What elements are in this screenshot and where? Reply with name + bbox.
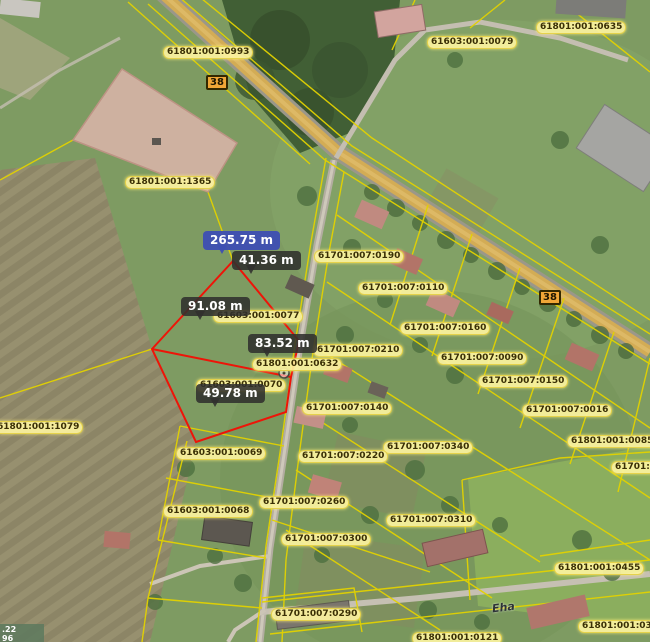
parcel-label: 61801:001:0455 [554, 562, 644, 575]
road-number-badge: 38 [539, 290, 561, 305]
parcel-label: 61801:001:1079 [0, 421, 83, 434]
parcel-label: 61701:007:0090 [437, 352, 527, 365]
parcel-label: 61701:00 [611, 461, 650, 474]
measurement-value: 83.52 m [255, 336, 310, 350]
parcel-label: 61801:001:0635 [536, 21, 626, 34]
parcel-label: 61701:007:0140 [302, 402, 392, 415]
measurement-value: 49.78 m [203, 386, 258, 400]
parcel-label: 61701:007:0016 [522, 404, 612, 417]
parcel-label: 61701:007:0340 [383, 441, 473, 454]
measurement-total-label: 265.75 m [203, 231, 280, 250]
measurement-value: 41.36 m [239, 253, 294, 267]
parcel-label: 61603:001:0079 [427, 36, 517, 49]
parcel-label: 61701:007:0210 [313, 344, 403, 357]
parcel-label: 61701:007:0190 [314, 250, 404, 263]
parcel-label: 61701:007:0110 [358, 282, 448, 295]
parcel-label: 61701:007:0160 [400, 322, 490, 335]
parcel-label: 61701:007:0310 [386, 514, 476, 527]
parcel-label: 61701:007:0290 [271, 608, 361, 621]
coordinate-line: .22 [2, 625, 44, 634]
coordinate-readout: .22 96 [0, 624, 44, 642]
parcel-label: 61701:007:0220 [298, 450, 388, 463]
parcel-label: 61801:001:1365 [125, 176, 215, 189]
measurement-value: 265.75 m [210, 233, 273, 247]
parcel-label: 61701:007:0300 [281, 533, 371, 546]
street-name-label: Eha [491, 600, 515, 616]
measurement-label: 41.36 m [232, 251, 301, 270]
measurement-label: 83.52 m [248, 334, 317, 353]
measurement-label: 91.08 m [181, 297, 250, 316]
measurement-label: 49.78 m [196, 384, 265, 403]
measurement-value: 91.08 m [188, 299, 243, 313]
parcel-label: 61801:001:0371 [578, 620, 650, 633]
parcel-label: 61801:001:0993 [163, 46, 253, 59]
road-number-badge: 38 [206, 75, 228, 90]
parcel-label: 61701:007:0150 [478, 375, 568, 388]
parcel-label: 61603:001:0068 [163, 505, 253, 518]
parcel-label: 61603:001:0069 [176, 447, 266, 460]
map-viewport[interactable]: 61801:001:0993 61603:001:0079 61801:001:… [0, 0, 650, 642]
coordinate-line: 96 [2, 634, 44, 642]
parcel-label: 61801:001:0121 [412, 632, 502, 642]
parcel-label: 61801:001:0085 [567, 435, 650, 448]
parcel-label: 61701:007:0260 [259, 496, 349, 509]
